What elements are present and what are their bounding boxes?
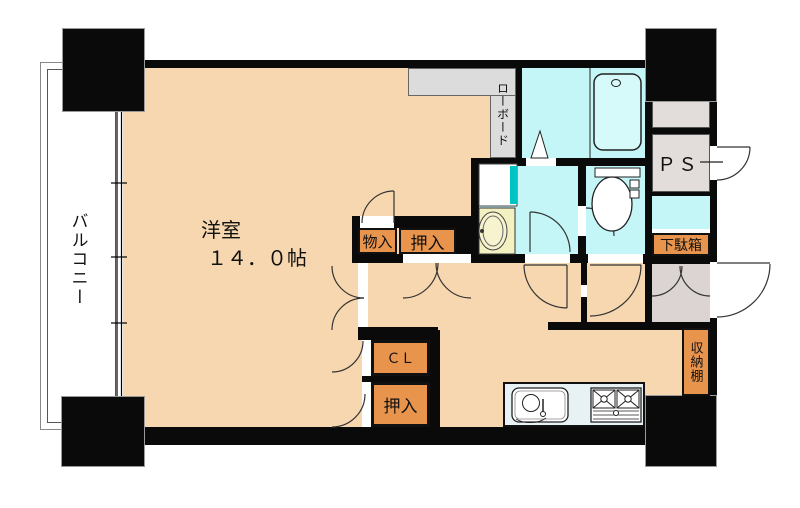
door-gap-monoire bbox=[360, 216, 394, 228]
pillar-bottom-left bbox=[61, 396, 145, 467]
door-gap-washroom bbox=[525, 254, 570, 263]
wall-ps-divider2 bbox=[652, 192, 710, 196]
wall-east-column bbox=[645, 100, 652, 322]
kitchen-counter bbox=[503, 382, 645, 427]
washroom-floor bbox=[479, 158, 578, 254]
door-gap-ps bbox=[710, 146, 717, 180]
storage-shelf-label: 収納棚 bbox=[687, 341, 706, 383]
meter-box bbox=[652, 100, 710, 128]
wall-cl-top bbox=[358, 327, 438, 340]
door-gap-closet-double bbox=[403, 254, 471, 263]
duct-strip bbox=[652, 196, 710, 229]
door-gap-cl bbox=[362, 340, 371, 376]
wall-entrance-top bbox=[643, 256, 712, 264]
bathroom-floor bbox=[522, 68, 645, 158]
pillar-bottom-right bbox=[645, 395, 717, 467]
closet-upper-box: 押入 bbox=[399, 228, 456, 254]
closet-cl-label: ＣＬ bbox=[387, 348, 415, 368]
shoe-cabinet-box: 下駄箱 bbox=[652, 233, 710, 256]
entrance-door-swing bbox=[717, 263, 770, 317]
door-gap-bath bbox=[526, 158, 556, 166]
closet-lower-label: 押入 bbox=[384, 392, 418, 417]
pipe-space-label: ＰＳ bbox=[652, 134, 704, 192]
storage-small-label: 物入 bbox=[362, 231, 392, 252]
wall-bath-left bbox=[516, 68, 522, 158]
entrance-floor bbox=[652, 264, 712, 322]
floor-plan: 物入 押入 ＣＬ 押入 下駄箱 収納棚 bbox=[0, 0, 800, 508]
living-room-label: 洋室 bbox=[186, 216, 256, 240]
wall-right bbox=[710, 100, 717, 397]
wall-top bbox=[145, 60, 650, 68]
living-room-size-label: １４．０帖 bbox=[194, 244, 320, 268]
door-gap-toilet-west bbox=[578, 206, 586, 236]
pillar-top-left bbox=[62, 28, 145, 112]
lowboard-label: ローボード bbox=[492, 72, 514, 156]
closet-lower-box: 押入 bbox=[371, 382, 430, 427]
closet-cl-box: ＣＬ bbox=[371, 340, 430, 376]
balcony-label: バルコニー bbox=[63, 190, 93, 328]
door-gap-oshiire-lower bbox=[362, 382, 371, 427]
door-gap-toilet bbox=[588, 254, 643, 263]
ps-door-swing bbox=[717, 147, 750, 180]
door-gap-entrance bbox=[710, 262, 717, 318]
pillar-top-right bbox=[645, 28, 717, 102]
storage-small-box: 物入 bbox=[358, 228, 397, 254]
storage-shelf-box: 収納棚 bbox=[682, 328, 710, 396]
shoe-cabinet-label: 下駄箱 bbox=[660, 235, 702, 255]
closet-upper-label: 押入 bbox=[411, 229, 445, 254]
toilet-floor bbox=[586, 158, 645, 256]
door-gap-living-east bbox=[358, 263, 368, 327]
gap-hall-entrance bbox=[581, 285, 587, 297]
wall-bottom bbox=[145, 427, 651, 445]
wall-bath-bottom bbox=[471, 158, 652, 166]
